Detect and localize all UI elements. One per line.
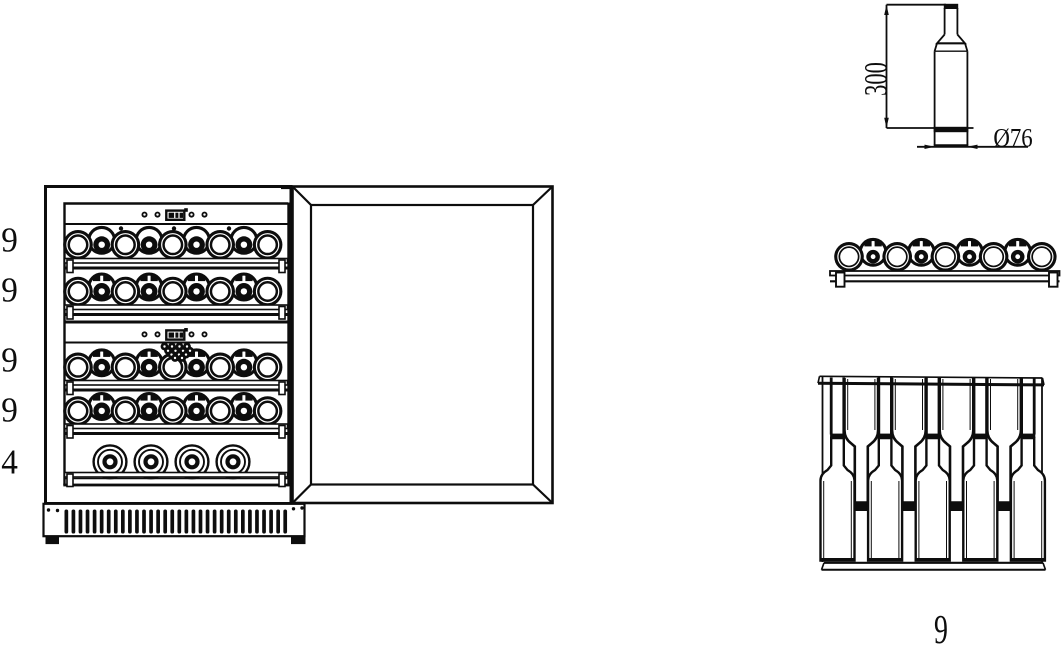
svg-text:9: 9 bbox=[1, 272, 18, 310]
svg-text:9: 9 bbox=[1, 222, 18, 260]
svg-text:4: 4 bbox=[1, 444, 18, 482]
svg-text:9: 9 bbox=[1, 392, 18, 430]
svg-text:300: 300 bbox=[858, 62, 894, 96]
svg-text:Ø76: Ø76 bbox=[993, 124, 1032, 153]
svg-text:9: 9 bbox=[1, 342, 18, 380]
svg-text:9: 9 bbox=[934, 607, 948, 648]
